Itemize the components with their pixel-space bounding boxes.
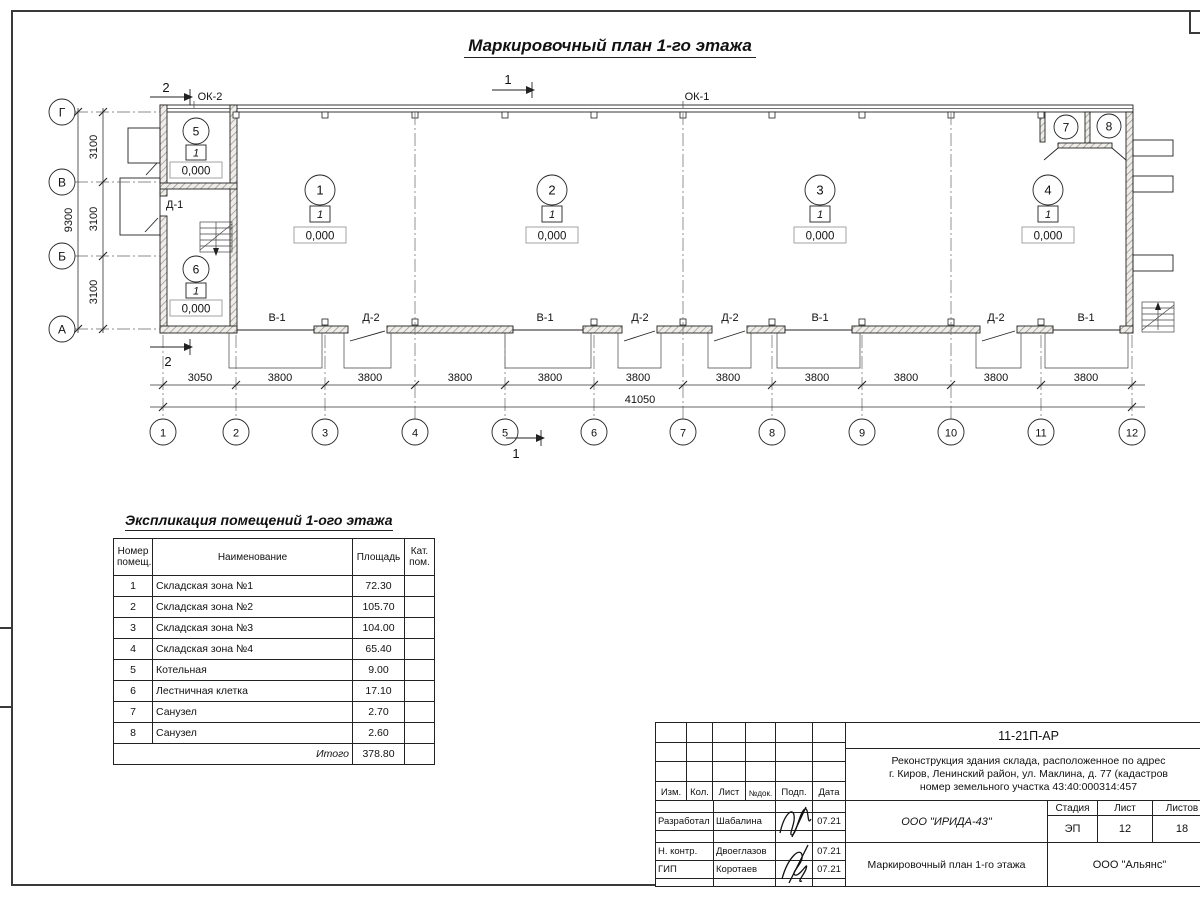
role-label: Н. контр.: [656, 843, 714, 861]
room-cat: [405, 681, 435, 702]
stage-value-cell: ЭП: [1048, 816, 1098, 843]
schedule-header-cat: Кат.пом.: [405, 539, 435, 576]
signature-icon: [780, 809, 811, 835]
room-num: 2: [114, 597, 153, 618]
table-row: 1Складская зона №172.30: [114, 576, 435, 597]
signatures: [776, 803, 813, 887]
dim-bottom: 3050: [188, 372, 212, 384]
table-row: 8Санузел2.60: [114, 723, 435, 744]
dim-left: 3100: [88, 135, 100, 159]
dim-left: 3100: [88, 207, 100, 231]
role-label: ГИП: [656, 861, 714, 879]
dim-bottom: 3800: [538, 372, 562, 384]
table-row: 3Складская зона №3104.00: [114, 618, 435, 639]
walls: [160, 105, 1133, 333]
total-label: Итого: [114, 744, 353, 765]
room-num: 8: [114, 723, 153, 744]
revision-grid: Изм. Кол. Лист №док. Подп. Дата: [656, 723, 846, 801]
room-number: 2: [548, 183, 555, 198]
role-name: Двоеглазов: [714, 843, 776, 861]
dim-bottom: 3800: [448, 372, 472, 384]
room-name: Лестничная клетка: [153, 681, 353, 702]
room-category: 1: [193, 286, 199, 298]
window-label-ok1: ОК-1: [685, 91, 710, 103]
room-cat: [405, 597, 435, 618]
opening-label: В-1: [1077, 312, 1094, 324]
room-name: Складская зона №1: [153, 576, 353, 597]
room-category: 1: [549, 209, 555, 221]
room-area: 72.30: [353, 576, 405, 597]
drawing-title-cell: Маркировочный план 1-го этажа: [846, 843, 1048, 887]
role-label: Разработал: [656, 813, 714, 831]
dim-bottom: 3800: [1074, 372, 1098, 384]
opening-label: Д-2: [721, 312, 738, 324]
room-name: Складская зона №3: [153, 618, 353, 639]
stair-exterior: [1142, 302, 1174, 332]
table-total-row: Итого378.80: [114, 744, 435, 765]
axis-col-label: 3: [322, 428, 328, 440]
section-mark-1: 1: [504, 72, 511, 87]
room-cat: [405, 744, 435, 765]
rev-header: Изм.: [656, 782, 687, 801]
axis-col-label: 8: [769, 428, 775, 440]
room-area: 2.70: [353, 702, 405, 723]
room-category: 1: [317, 209, 323, 221]
room-level: 0,000: [182, 304, 211, 316]
dim-bottom: 3800: [268, 372, 292, 384]
axis-col-label: 9: [859, 428, 865, 440]
frame-tick-1: [0, 627, 11, 629]
section-mark-2: 2: [162, 80, 169, 95]
room-number: 1: [316, 183, 323, 198]
room-number: 8: [1106, 120, 1113, 134]
dim-bottom: 3800: [805, 372, 829, 384]
client-org-cell: ООО "Альянс": [1048, 843, 1200, 887]
room-level: 0,000: [306, 231, 335, 243]
sheet-header-cell: Лист: [1098, 801, 1153, 816]
room-cat: [405, 639, 435, 660]
project-line: г. Киров, Ленинский район, ул. Маклина, …: [889, 768, 1168, 781]
room-number: 3: [816, 183, 823, 198]
opening-label: В-1: [536, 312, 553, 324]
total-value: 378.80: [353, 744, 405, 765]
opening-label: Д-2: [987, 312, 1004, 324]
frame-tick-2: [0, 706, 11, 708]
room-cat: [405, 618, 435, 639]
dim-bottom-total: 41050: [625, 394, 656, 406]
room-level: 0,000: [1034, 231, 1063, 243]
section-mark-1: 1: [512, 446, 519, 461]
window-label-ok2: ОК-2: [198, 91, 223, 103]
sheet-number-cell: 12: [1098, 816, 1153, 843]
element-labels: ОК-2 ОК-1 Д-1 В-1 Д-2 В-1 Д-2 Д-2 В-1 Д-…: [166, 91, 1095, 324]
dim-left: 3100: [88, 280, 100, 304]
room-cat: [405, 702, 435, 723]
room-name: Санузел: [153, 702, 353, 723]
project-description: Реконструкция здания склада, расположенн…: [846, 749, 1200, 801]
title-block: Изм. Кол. Лист №док. Подп. Дата Разработ…: [655, 722, 1200, 887]
room-num: 6: [114, 681, 153, 702]
room-area: 104.00: [353, 618, 405, 639]
room-category: 1: [817, 209, 823, 221]
doc-code-cell: 11-21П-АР: [846, 723, 1200, 749]
axis-col-label: 11: [1035, 428, 1046, 440]
axis-col-label: 7: [680, 428, 686, 440]
axis-row-label: Б: [58, 250, 66, 264]
opening-label: Д-2: [362, 312, 379, 324]
opening-label: В-1: [268, 312, 285, 324]
dim-bottom: 3800: [358, 372, 382, 384]
dim-bottom: 3800: [984, 372, 1008, 384]
opening-label: В-1: [811, 312, 828, 324]
role-name: Коротаев: [714, 861, 776, 879]
room-name: Складская зона №2: [153, 597, 353, 618]
porches-and-doors: [120, 128, 1173, 271]
schedule-title: Экспликация помещений 1-ого этажа: [125, 512, 413, 528]
room-num: 7: [114, 702, 153, 723]
signature-icon: [789, 845, 808, 883]
room-level: 0,000: [182, 166, 211, 178]
floor-plan: 3050 3800 3800 3800 3800 3800 3800 3800 …: [0, 0, 1200, 480]
axis-col-label: 6: [591, 428, 597, 440]
table-row: 5Котельная9.00: [114, 660, 435, 681]
room-cat: [405, 660, 435, 681]
designer-org-cell: ООО "ИРИДА-43": [846, 801, 1048, 843]
room-schedule: Экспликация помещений 1-ого этажа Номерп…: [113, 512, 413, 765]
schedule-header-name: Наименование: [153, 539, 353, 576]
room-num: 5: [114, 660, 153, 681]
drawing-sheet: Маркировочный план 1-го этажа: [0, 0, 1200, 900]
sheets-header-cell: Листов: [1153, 801, 1200, 816]
table-row: 7Санузел2.70: [114, 702, 435, 723]
column-markers: [233, 112, 1044, 325]
room-number: 4: [1044, 183, 1051, 198]
dim-left-total: 9300: [63, 208, 75, 232]
schedule-header-area: Площадь: [353, 539, 405, 576]
rev-header: Подп.: [776, 782, 813, 801]
room-area: 17.10: [353, 681, 405, 702]
axis-row-label: Г: [59, 106, 66, 120]
room-level: 0,000: [806, 231, 835, 243]
rev-header: Дата: [813, 782, 846, 801]
roles-grid: Разработал Шабалина 07.21 Н. контр. Двое…: [656, 801, 846, 887]
room-number: 7: [1063, 121, 1070, 135]
axis-col-label: 12: [1126, 428, 1138, 440]
stair-interior: [200, 222, 232, 256]
project-line: Реконструкция здания склада, расположенн…: [892, 755, 1166, 768]
room-num: 3: [114, 618, 153, 639]
role-date: 07.21: [813, 843, 846, 861]
axis-col-label: 10: [945, 428, 957, 440]
role-name: Шабалина: [714, 813, 776, 831]
schedule-table: Номерпомещ. Наименование Площадь Кат.пом…: [113, 538, 435, 765]
room-area: 65.40: [353, 639, 405, 660]
room-cat: [405, 723, 435, 744]
axis-col-label: 1: [160, 428, 166, 440]
project-line: номер земельного участка 43:40:000314:45…: [920, 781, 1137, 794]
rev-header: Лист: [713, 782, 746, 801]
table-row: 4Складская зона №465.40: [114, 639, 435, 660]
axis-col-label: 2: [233, 428, 239, 440]
axis-col-label: 4: [412, 428, 418, 440]
rev-header: Кол.: [687, 782, 713, 801]
table-row: 6Лестничная клетка17.10: [114, 681, 435, 702]
room-level: 0,000: [538, 231, 567, 243]
room-name: Складская зона №4: [153, 639, 353, 660]
room-area: 105.70: [353, 597, 405, 618]
room-number: 6: [193, 263, 200, 277]
dim-bottom: 3800: [716, 372, 740, 384]
role-date: 07.21: [813, 861, 846, 879]
room-name: Котельная: [153, 660, 353, 681]
room-category: 1: [193, 148, 199, 160]
door-label-d1: Д-1: [166, 199, 183, 211]
room-cat: [405, 576, 435, 597]
room-num: 4: [114, 639, 153, 660]
room-number: 5: [193, 125, 200, 139]
table-row: 2Складская зона №2105.70: [114, 597, 435, 618]
room-markers: 1 1 0,000 2 1 0,000 3 1 0,000 4 1 0,000 …: [170, 114, 1121, 316]
schedule-header-num: Номерпомещ.: [114, 539, 153, 576]
dim-bottom: 3800: [894, 372, 918, 384]
sheets-total-cell: 18: [1153, 816, 1200, 843]
axis-row-label: А: [58, 323, 66, 337]
room-area: 9.00: [353, 660, 405, 681]
rev-header: №док.: [746, 782, 776, 801]
role-date: 07.21: [813, 813, 846, 831]
dim-bottom: 3800: [626, 372, 650, 384]
room-num: 1: [114, 576, 153, 597]
stage-header-cell: Стадия: [1048, 801, 1098, 816]
opening-label: Д-2: [631, 312, 648, 324]
axis-bubbles: Г В Б А 1 2 3 4 5 6 7 8 9 10 11 12: [49, 99, 1145, 445]
room-name: Санузел: [153, 723, 353, 744]
section-mark-2: 2: [164, 354, 171, 369]
axis-row-label: В: [58, 176, 66, 190]
room-area: 2.60: [353, 723, 405, 744]
room-category: 1: [1045, 209, 1051, 221]
